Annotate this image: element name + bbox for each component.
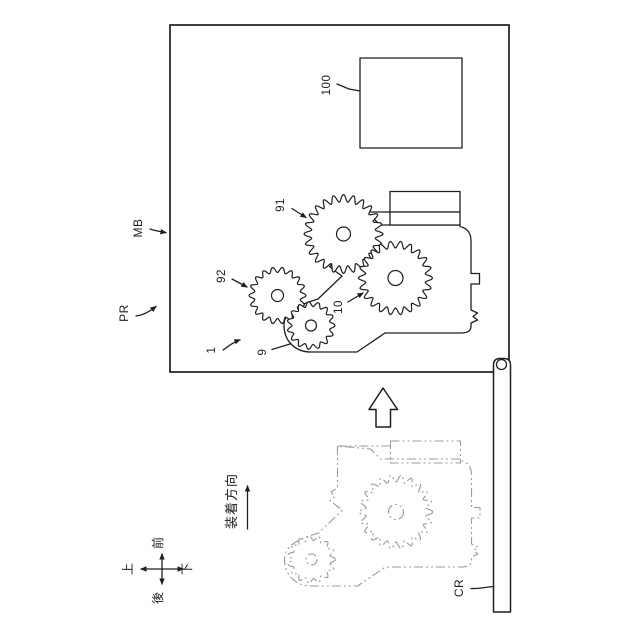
- board-100-outline: [360, 58, 462, 148]
- label-pr: PR: [117, 304, 131, 322]
- pr-arrow: [136, 307, 156, 317]
- gear-91-hole: [337, 227, 351, 241]
- ghost-gear-10: [359, 475, 433, 548]
- label-92: 92: [216, 269, 228, 283]
- ghost-gear-10-hole: [389, 505, 404, 520]
- carriage-bar: [494, 359, 511, 613]
- compass-back: 後: [151, 592, 165, 604]
- mounting-block-arrow: [369, 388, 398, 427]
- gear-10-hole: [388, 271, 403, 286]
- label-1: 1: [206, 347, 218, 354]
- orientation-compass: 前 後 上 下: [121, 537, 194, 604]
- compass-up: 上: [121, 563, 135, 575]
- label-cr: CR: [452, 579, 466, 597]
- patent-figure: 100 MB PR 1 92: [0, 0, 640, 640]
- gear-9-hole: [306, 320, 317, 331]
- figure-canvas: 100 MB PR 1 92: [0, 0, 640, 640]
- label-9: 9: [257, 349, 269, 356]
- compass-front: 前: [150, 537, 165, 549]
- label-10: 10: [333, 300, 345, 314]
- label-100: 100: [321, 75, 333, 96]
- mounting-direction: 装着方向: [224, 473, 248, 529]
- carriage-pivot-hole: [497, 360, 507, 370]
- ghost-gear-9-hole: [306, 554, 317, 565]
- label-91: 91: [275, 198, 287, 212]
- mounting-direction-text: 装着方向: [224, 473, 239, 529]
- compass-down: 下: [180, 563, 194, 575]
- label-mb: MB: [131, 219, 145, 238]
- gear-92-hole: [272, 290, 284, 302]
- tab-upper: [390, 192, 460, 213]
- mb-leader-arrow: [150, 229, 166, 233]
- tab-lower: [390, 212, 460, 225]
- ghost-tab: [391, 441, 461, 463]
- ghost-unit: [285, 441, 481, 586]
- cr-leader: [471, 587, 494, 589]
